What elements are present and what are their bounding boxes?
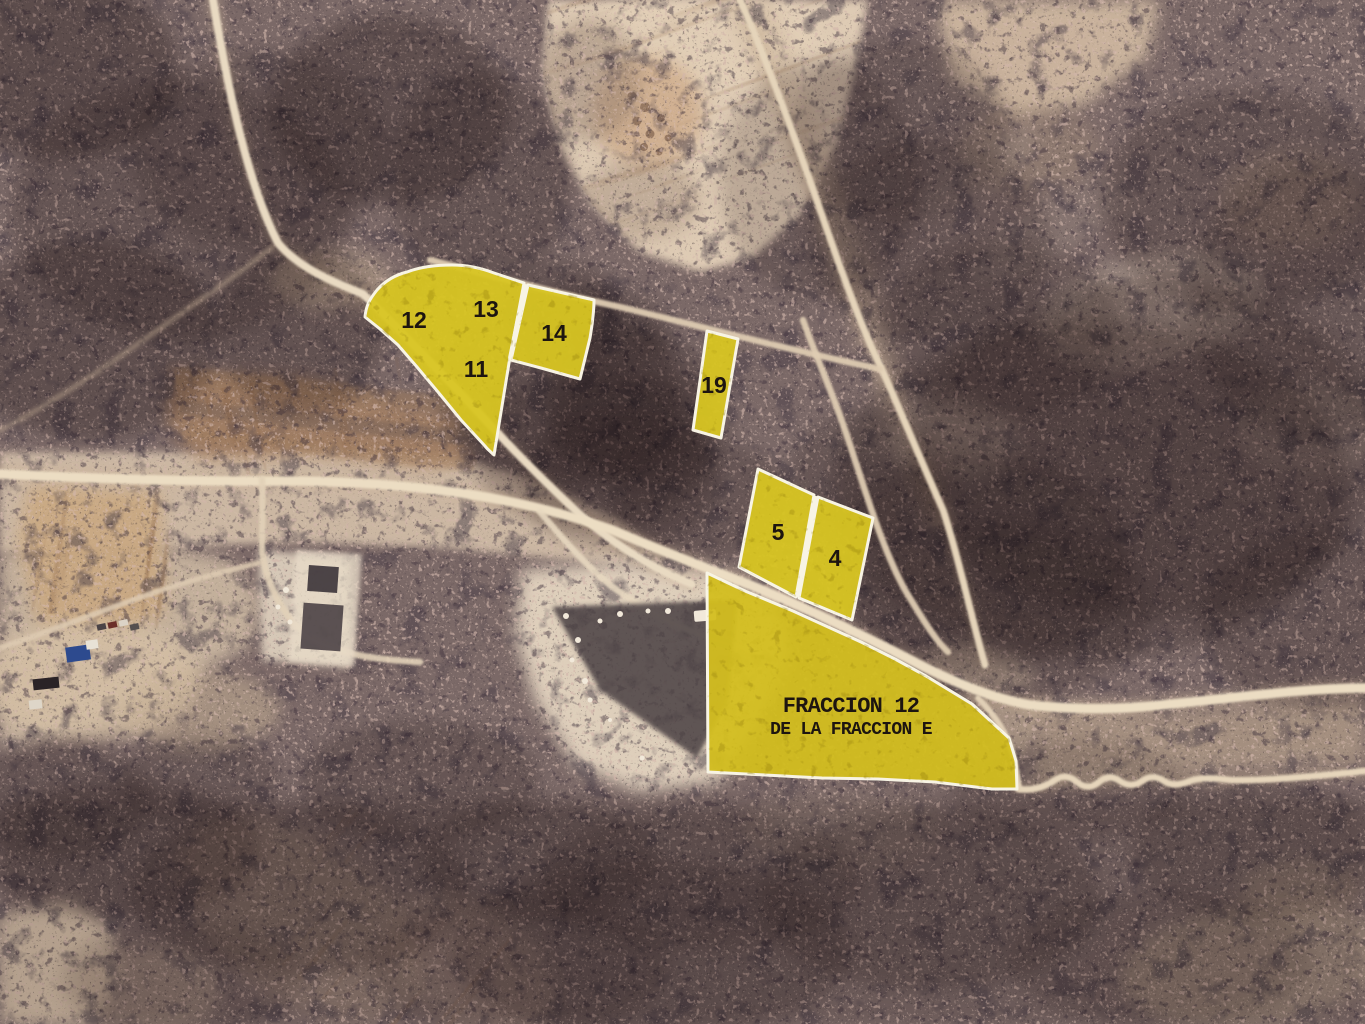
svg-text:DE LA FRACCION E: DE LA FRACCION E: [770, 720, 933, 740]
svg-text:12: 12: [401, 307, 427, 333]
svg-text:14: 14: [541, 320, 567, 346]
svg-text:FRACCION 12: FRACCION 12: [783, 694, 919, 719]
svg-text:13: 13: [473, 296, 499, 322]
svg-text:19: 19: [701, 372, 727, 398]
svg-text:4: 4: [829, 545, 842, 571]
svg-text:5: 5: [772, 519, 785, 545]
svg-text:11: 11: [464, 356, 489, 382]
